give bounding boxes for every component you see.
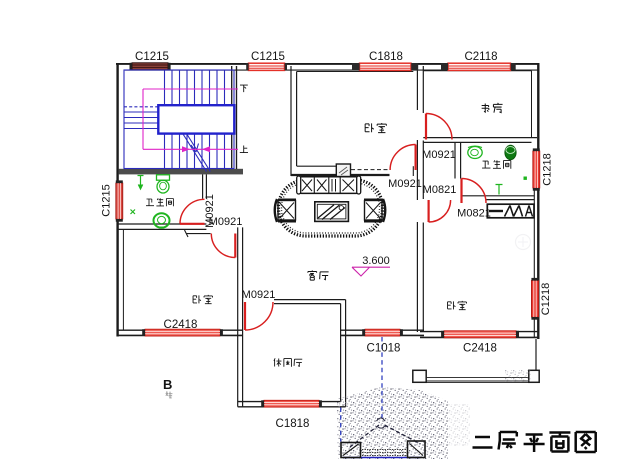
svg-text:C2118: C2118 <box>464 51 497 63</box>
svg-text:C1818: C1818 <box>276 418 310 430</box>
svg-text:C1215: C1215 <box>101 184 113 216</box>
svg-text:M0921: M0921 <box>422 149 456 161</box>
svg-text:C1218: C1218 <box>542 153 554 185</box>
svg-text:M0821: M0821 <box>423 184 457 196</box>
svg-text:C1218: C1218 <box>540 283 552 315</box>
svg-text:M0921: M0921 <box>388 178 422 190</box>
svg-text:C1215: C1215 <box>251 51 285 63</box>
svg-text:M0921: M0921 <box>209 216 243 228</box>
svg-text:M0821: M0821 <box>457 208 491 220</box>
svg-text:C1215: C1215 <box>135 51 169 63</box>
svg-text:B: B <box>163 377 172 392</box>
svg-text:C2418: C2418 <box>164 319 198 331</box>
svg-text:C2418: C2418 <box>463 343 497 355</box>
svg-text:C1818: C1818 <box>369 51 403 63</box>
svg-text:C1018: C1018 <box>367 343 401 355</box>
svg-text:M0921: M0921 <box>242 289 276 301</box>
svg-text:3.600: 3.600 <box>362 255 390 267</box>
